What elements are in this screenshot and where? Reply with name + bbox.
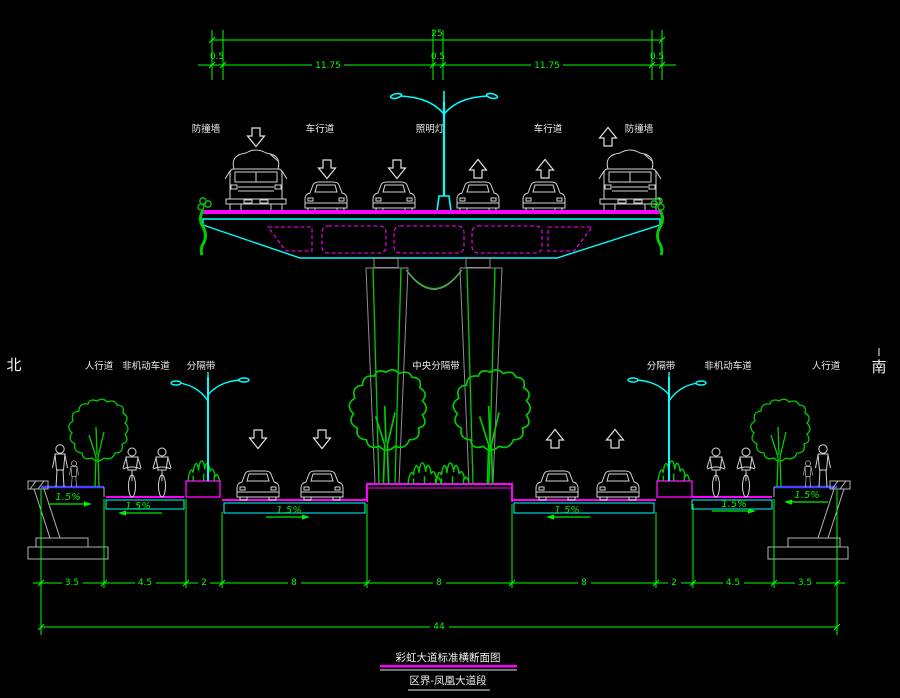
bush-divider-right: [658, 461, 690, 481]
car: [301, 471, 343, 500]
tree-sidewalk-right: [751, 399, 810, 487]
deck-label-barrier-right: 防撞墙: [625, 123, 654, 135]
title-underline-magenta: [380, 665, 517, 668]
dim-top-seg-0: 0.5: [210, 52, 224, 62]
deck-surface: [203, 210, 660, 214]
slope-label: 1.5%: [554, 505, 579, 516]
road-surfaces: [41, 481, 837, 513]
dim-top-seg-4: 0.5: [650, 52, 664, 62]
divider-left-curb: [186, 481, 220, 497]
road-label-bike-right: 非机动车道: [704, 360, 752, 372]
car: [536, 471, 578, 500]
car: [237, 471, 279, 500]
street-lamps-road: [171, 372, 706, 481]
cyclist: [707, 448, 725, 497]
dim-top-seg-1: 11.75: [315, 61, 341, 71]
truck-left: [225, 150, 287, 211]
vegetation: [69, 370, 810, 487]
bush-median: [436, 463, 469, 484]
drawing-title: 彩虹大道标准横断面图: [396, 651, 501, 664]
road-label-sidewalk-right: 人行道: [812, 360, 841, 372]
bottom-dimension-chain: [33, 490, 845, 635]
pedestrian-child: [69, 461, 78, 487]
dim-bottom-seg-2: 2: [201, 578, 207, 588]
pedestrian-adult: [53, 445, 68, 487]
dim-bottom-seg-7: 4.5: [726, 578, 740, 588]
tree-sidewalk-left: [69, 399, 128, 487]
girder-inner-cells: [268, 226, 592, 253]
dim-top-seg-3: 11.75: [534, 61, 560, 71]
deck-label-lane-left: 车行道: [306, 123, 335, 135]
dim-bottom-total: 44: [433, 622, 445, 632]
bush-divider-left: [188, 461, 220, 481]
car: [305, 182, 347, 211]
cyclist: [123, 448, 141, 497]
dim-bottom-seg-3: 8: [291, 578, 297, 588]
car: [597, 471, 639, 500]
traffic-direction-arrows-road: [250, 430, 624, 449]
dim-top-seg-2: 0.5: [431, 52, 445, 62]
cyclist: [737, 448, 755, 497]
pedestrian-adult: [816, 445, 831, 487]
deck-street-lamp: [390, 91, 498, 211]
dim-top-total: 25: [431, 29, 442, 39]
cyclist: [153, 448, 171, 497]
dim-bottom-seg-0: 3.5: [65, 578, 79, 588]
slope-label: 1.5%: [55, 492, 80, 503]
box-girder-outline: [203, 219, 660, 258]
dim-bottom-seg-4: 8: [436, 578, 442, 588]
compass-north: 北: [6, 356, 21, 374]
car: [457, 182, 499, 211]
deck-label-lamp: 照明灯: [416, 124, 445, 135]
slope-label: 1.5%: [125, 501, 150, 512]
road-label-bike-left: 非机动车道: [122, 360, 170, 372]
dim-bottom-seg-8: 3.5: [798, 578, 812, 588]
dim-bottom-seg-6: 2: [671, 578, 677, 588]
slope-label: 1.5%: [794, 490, 819, 501]
pedestrian-child: [803, 461, 812, 487]
slope-label: 1.5%: [721, 499, 746, 510]
dim-bottom-seg-5: 8: [581, 578, 587, 588]
road-label-sidewalk-left: 人行道: [85, 360, 114, 372]
car: [523, 182, 565, 211]
title-block: 彩虹大道标准横断面图 区界-凤凰大道段: [380, 651, 517, 690]
pier-column-right: [460, 268, 502, 484]
slope-label: 1.5%: [276, 505, 301, 516]
car: [373, 182, 415, 211]
deck-label-barrier-left: 防撞墙: [192, 123, 221, 135]
lamp-divider-left: [171, 372, 249, 481]
road-label-divider-left: 分隔带: [187, 361, 216, 372]
median-curb: [367, 484, 512, 502]
road-label-divider-right: 分隔带: [647, 361, 676, 372]
dim-bottom-seg-1: 4.5: [138, 578, 152, 588]
road-label-median: 中央分隔带: [412, 360, 460, 372]
bearing-right: [466, 259, 490, 268]
bridge-piers: [366, 268, 502, 484]
traffic-direction-arrows-deck: [248, 128, 617, 179]
bearing-left: [374, 259, 398, 268]
bridge-superstructure: [198, 198, 664, 268]
deck-label-lane-right: 车行道: [534, 123, 563, 135]
divider-right-curb: [657, 481, 692, 497]
cad-cross-section-drawing: 25 0.5 11.75 0.5 11.75 0.5 防撞墙 车行道 照明灯 车…: [0, 0, 900, 698]
compass-south: 南: [871, 358, 886, 376]
slope-annotations: 1.5% 1.5% 1.5% 1.5% 1.5% 1.5%: [48, 490, 828, 520]
drawing-subtitle: 区界-凤凰大道段: [409, 674, 487, 687]
